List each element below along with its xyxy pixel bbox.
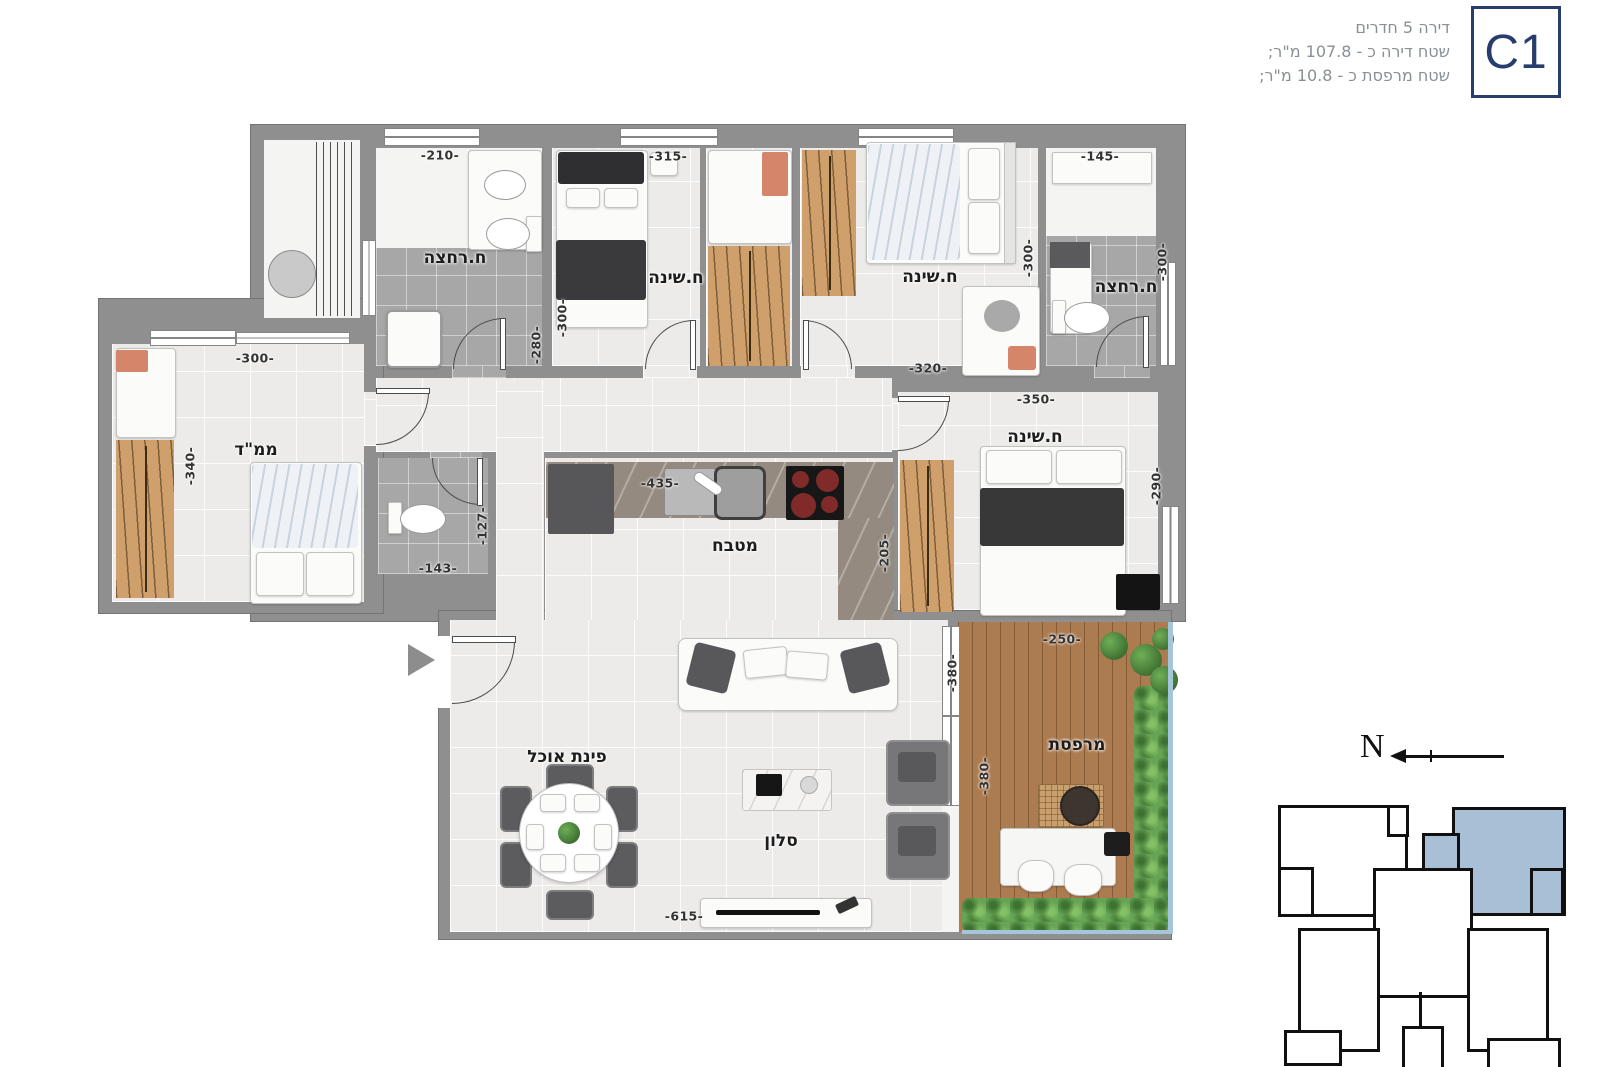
place-setting [574,794,600,812]
keyplan-appendix [1387,805,1409,837]
bedroom1-pillow-b [604,188,638,208]
master-pillow-b [1056,450,1122,484]
glass-rail-bottom [962,930,1170,934]
place-setting [540,854,566,872]
keyplan-foot-bottomleft [1284,1030,1342,1066]
mamad-wardrobe [116,440,174,598]
bedroom2-chair [984,300,1020,332]
planter-bush [1100,632,1128,660]
door-leaf-entry [452,636,516,643]
room-label-bedroom2: ח.שינה [902,267,957,287]
keyplan-foot-bottomright [1487,1038,1561,1067]
dim-balcony-width: -250- [1043,632,1081,647]
shower1-tray [386,310,442,368]
door-leaf-bathroom1 [500,318,506,370]
keyplan-core [1373,868,1473,998]
dim-mamad-width: -300- [236,351,274,366]
keyplan-highlight-subroom [1530,868,1564,916]
bathroom1-sink [484,170,526,200]
north-label: N [1360,728,1385,766]
bedroom1-dresser-accent [762,152,788,196]
dim-wc-width: -143- [419,561,457,576]
room-label-kitchen: מטבח [712,536,758,556]
bedroom2-pillow-a [968,148,1000,200]
dim-living-depth: -380- [945,654,960,692]
place-setting [594,824,612,850]
floorplan-page: דירה 5 חדרים שטח דירה כ - 107.8 מ"ר; שטח… [0,0,1600,1067]
dim-wc-depth: -127- [475,507,490,545]
room-label-bathroom1: ח.רחצה [424,248,487,268]
burner-icon [821,496,838,513]
dining-chair [546,890,594,920]
toilet1-bowl [486,218,530,250]
dim-master-depth: -290- [1149,467,1164,505]
apartment-info: דירה 5 חדרים שטח דירה כ - 107.8 מ"ר; שטח… [1259,16,1450,88]
apartment-type: דירה 5 חדרים [1259,16,1450,40]
bedroom1-blanket [556,240,646,300]
refrigerator [548,464,614,534]
balcony-area: שטח מרפסת כ - 10.8 מ"ר; [1259,64,1450,88]
armchair-top-pillow [898,752,936,782]
door-leaf-mamad [376,388,430,394]
room-label-balcony: מרפסת [1049,735,1106,755]
tv-screen [716,910,820,915]
bathroom2-vanity-dark [1050,242,1090,268]
mamad-pillow-b [306,552,354,596]
dim-kitchen-depth: -205- [877,534,892,572]
mamad-cabinet-accent [116,350,148,372]
dim-bathroom1-depth: -280- [529,326,544,364]
wc-toilet-bowl [400,504,446,534]
louver-screen [316,142,358,316]
dim-bathroom1-width: -210- [421,148,459,163]
room-label-bathroom2: ח.רחצה [1095,277,1158,297]
room-label-dining: פינת אוכל [527,747,607,767]
place-setting [574,854,600,872]
apartment-area: שטח דירה כ - 107.8 מ"ר; [1259,40,1450,64]
room-label-master: ח.שינה [1007,427,1062,447]
dim-bedroom2-width: -320- [909,361,947,376]
sofa-pillow-a [743,646,790,679]
master-pillow-a [986,450,1052,484]
armchair-bottom-pillow [898,826,936,856]
outdoor-side-table [1104,832,1130,856]
master-wardrobe [900,460,954,612]
dim-bedroom1-depth: -300- [555,299,570,337]
planter-bush [1150,666,1178,694]
bedroom2-duvet [868,144,960,260]
place-setting [526,824,544,850]
master-tv-unit [1116,574,1160,610]
dim-kitchen-width: -435- [641,476,679,491]
window-mamad-slider [236,332,350,344]
dim-bedroom2-depth: -300- [1021,239,1036,277]
burner-icon [791,493,816,518]
dim-mamad-depth: -340- [183,447,198,485]
entry-door-gap [438,636,450,708]
dim-bathroom2-width: -145- [1081,149,1119,164]
outdoor-chair [1018,860,1054,892]
outdoor-table [1060,786,1100,826]
room-label-salon: סלון [764,831,798,851]
outdoor-chair [1064,864,1102,896]
room-label-mamad: ממ"ד [234,440,277,460]
toilet2-bowl [1064,302,1110,334]
balcony-hedge-right [1134,686,1168,932]
bedroom2-headboard [1004,142,1016,264]
kitchen-sink-basin [714,466,766,520]
coffee-table-bowl [800,776,818,794]
north-arrow-line [1404,755,1504,758]
window-master-side [1162,506,1179,604]
bedroom2-wardrobe [802,150,856,296]
north-arrow-tick [1430,750,1432,762]
entry-arrow-icon [408,644,435,676]
door-leaf-bedroom2 [803,320,809,370]
door-gap-mamad [364,392,376,446]
door-leaf-bathroom2 [1143,316,1149,368]
door-leaf-master [898,396,950,402]
keyplan-stem [1419,992,1422,1028]
place-setting [540,794,566,812]
burner-icon [792,471,809,488]
bedroom2-desk-accent [1008,346,1036,370]
sofa-pillow-b [785,650,829,681]
door-leaf-bedroom1 [690,320,696,370]
keyplan-unit-bottomright [1467,928,1549,1052]
window-bedroom1 [620,128,718,146]
table-centerpiece [558,822,580,844]
unit-code-badge: C1 [1471,6,1561,98]
mamad-pillow-a [256,552,304,596]
keyplan-connector [1402,1026,1444,1067]
dim-living-width: -615- [665,909,703,924]
boiler-icon [268,250,316,298]
dim-bedroom1-width: -315- [649,149,687,164]
bedroom2-pillow-b [968,202,1000,254]
keyplan-notch-topleft [1278,867,1314,917]
hall-floor [496,380,544,622]
burner-icon [816,469,839,492]
window-mamad [150,330,236,346]
room-label-bedroom1: ח.שינה [648,268,703,288]
dim-master-width: -350- [1017,392,1055,407]
window-service-balcony [362,240,376,316]
glass-rail-right [1168,622,1173,934]
corridor-floor [376,378,892,452]
balcony-hedge-bottom [962,898,1168,932]
bedroom1-headboard-pillows [558,152,644,184]
dim-bathroom2-depth: -300- [1155,243,1170,281]
window-bathroom1 [384,128,480,146]
north-arrow-head [1390,749,1406,763]
master-blanket [980,488,1124,546]
mamad-duvet [252,464,358,548]
bedroom1-wardrobe [708,246,790,366]
dim-balcony-depth: -380- [977,757,992,795]
door-gap-bathroom2 [1094,366,1150,378]
door-leaf-wc [477,458,483,506]
bedroom1-pillow-a [566,188,600,208]
coffee-table-tray [756,774,782,796]
